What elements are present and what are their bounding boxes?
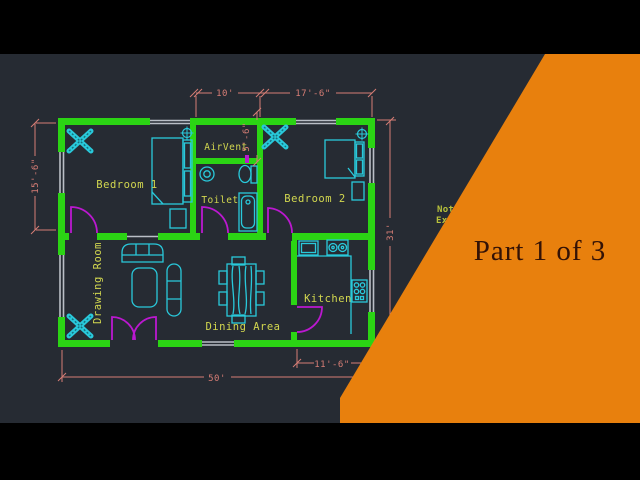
letterbox-top	[0, 0, 640, 54]
label-kitchen: Kitchen	[304, 293, 352, 305]
opening-left-window1	[57, 152, 66, 193]
opening-kitchen-door	[290, 305, 298, 332]
opening-entrance-door	[110, 339, 158, 348]
opening-right-window1	[367, 148, 376, 183]
dim-bedroom2-width: 17'-6"	[295, 89, 331, 99]
cad-floorplan-scene: Bedroom 1 Bedroom 2 AirVent Toilet Drawi…	[0, 0, 640, 480]
opening-top-window1	[150, 117, 190, 126]
opening-bedroom2-door	[266, 232, 292, 241]
opening-top-window2	[296, 117, 336, 126]
label-bedroom1: Bedroom 1	[96, 179, 157, 191]
dim-airvent-height: 5'-6"	[242, 122, 252, 152]
opening-bottom-window	[202, 339, 234, 348]
letterbox-bottom	[0, 423, 640, 480]
part-title: Part 1 of 3	[474, 235, 607, 267]
label-bedroom2: Bedroom 2	[284, 193, 345, 205]
wall-toilet-bedroom2	[257, 118, 263, 240]
dim-airvent-width: 10'	[216, 89, 234, 99]
vent-toilet-top	[245, 155, 249, 163]
video-frame: Bedroom 1 Bedroom 2 AirVent Toilet Drawi…	[0, 0, 640, 480]
label-toilet: Toilet	[201, 195, 238, 206]
dim-plan-width: 50'	[208, 374, 226, 384]
dim-bedroom1-height: 15'-6"	[31, 158, 41, 194]
opening-bedroom1-door	[69, 232, 97, 241]
dim-plan-height: 31'	[386, 223, 396, 241]
label-drawing-room: Drawing Room	[92, 242, 104, 324]
wall-airvent-bottom	[190, 158, 263, 164]
dim-kitchen-width: 11'-6"	[314, 360, 350, 370]
opening-right-window2	[367, 270, 376, 312]
opening-toilet-door	[200, 232, 228, 241]
label-dining-area: Dining Area	[205, 321, 280, 333]
opening-left-window2	[57, 255, 66, 317]
